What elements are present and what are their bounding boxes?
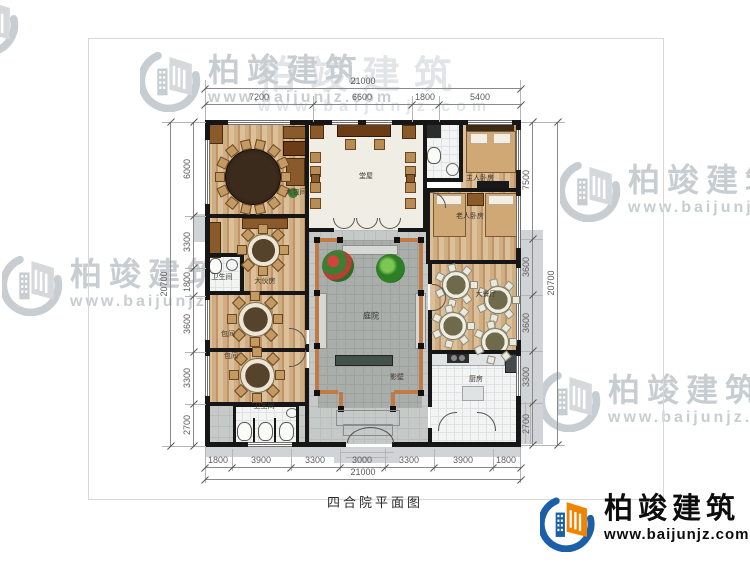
wall	[398, 228, 427, 232]
side-porch	[193, 214, 205, 242]
dim-bottom-total: 21000	[350, 467, 375, 477]
dim-right-total: 20700	[546, 270, 556, 295]
room-label-master-bedroom: 主人卧房	[466, 173, 494, 183]
wall	[426, 260, 521, 264]
burner	[459, 355, 465, 361]
courtyard-wall	[315, 240, 319, 390]
extension-line	[520, 80, 521, 120]
window	[468, 120, 512, 125]
extension-line	[185, 296, 206, 297]
stall-divider	[253, 418, 255, 442]
column	[314, 290, 320, 296]
window	[332, 120, 358, 125]
toilet	[237, 422, 252, 441]
dimension-line-left-total	[170, 122, 171, 446]
wall	[423, 178, 463, 182]
chair	[275, 370, 285, 380]
chair	[470, 281, 478, 289]
tree-symbol	[376, 254, 405, 283]
wall	[296, 404, 299, 442]
dim-left-seg: 1800	[182, 272, 192, 292]
tea-table	[406, 174, 415, 183]
room-label-bathroom-mid: 卫生间	[212, 272, 233, 282]
courtyard-wall	[419, 240, 423, 390]
room-label-elder-bedroom: 老人卧房	[456, 211, 484, 221]
wall	[392, 442, 521, 447]
plant-stand	[402, 125, 416, 139]
tree-symbol	[322, 250, 354, 282]
chair	[486, 320, 496, 330]
dim-bottom-seg: 3000	[352, 455, 372, 465]
dim-bottom-seg: 3900	[453, 455, 473, 465]
chair	[227, 314, 237, 324]
dimension-line-bottom-total	[205, 479, 521, 480]
dimension-line-right-segments	[532, 122, 533, 445]
chair	[281, 172, 291, 182]
dim-bottom-seg: 1800	[208, 455, 228, 465]
pillow	[488, 195, 514, 205]
window	[516, 196, 521, 248]
room-label-screen-wall: 影壁	[390, 372, 404, 382]
courtyard-wall	[318, 390, 338, 394]
room-label-private-1: 包间	[221, 329, 235, 339]
dim-top-total: 21000	[350, 76, 375, 86]
wall	[305, 228, 334, 232]
chair	[250, 291, 260, 301]
column	[314, 343, 320, 349]
extension-line	[185, 216, 206, 217]
chair	[374, 139, 385, 150]
dim-right-seg: 3300	[521, 367, 531, 387]
chair	[279, 245, 289, 255]
chair	[444, 339, 454, 349]
window	[248, 442, 292, 447]
wall	[305, 214, 309, 330]
chair	[258, 224, 268, 234]
chair	[467, 322, 475, 330]
dim-right-seg: 3600	[521, 257, 531, 277]
extension-line	[412, 96, 413, 122]
kitchen-island	[462, 386, 484, 401]
window	[205, 300, 210, 340]
chair	[252, 347, 262, 357]
extension-line	[439, 96, 440, 122]
room-label-big-private: 大包间	[286, 187, 307, 197]
chair	[486, 355, 496, 365]
courtyard-wall	[318, 238, 338, 242]
dimension-line-top-total	[205, 88, 521, 89]
extension-line	[185, 352, 206, 353]
chair	[509, 338, 517, 346]
room-label-hall: 堂屋	[359, 171, 373, 181]
washing-machine	[426, 123, 441, 138]
extension-line	[185, 268, 206, 269]
toilet	[279, 422, 294, 441]
chair	[444, 304, 454, 314]
wall	[240, 253, 244, 293]
dimension-line-right-total	[557, 122, 558, 445]
sink	[446, 163, 459, 176]
wall	[428, 264, 432, 284]
dim-right-seg: 7500	[521, 170, 531, 190]
chair	[512, 296, 520, 304]
chair	[345, 139, 356, 150]
window	[228, 120, 290, 125]
chair	[237, 245, 247, 255]
dim-left-seg: 6000	[182, 159, 192, 179]
dimension-line-left-segments	[193, 122, 194, 446]
toilet	[427, 147, 441, 164]
tea-table	[311, 174, 320, 183]
column	[418, 290, 424, 296]
wall	[305, 368, 309, 447]
dim-bottom-seg: 3300	[305, 455, 325, 465]
column	[418, 390, 424, 396]
stall-divider	[274, 418, 276, 442]
chair	[405, 152, 416, 163]
dim-left-seg: 2700	[182, 415, 192, 435]
baijun-logo-icon	[540, 494, 598, 552]
dim-left-seg: 3600	[182, 314, 192, 334]
wall	[428, 354, 432, 407]
chair	[310, 198, 321, 209]
dim-left-seg: 3300	[182, 368, 192, 388]
dim-bottom-seg: 3300	[399, 455, 419, 465]
chair	[447, 263, 457, 273]
floor-plan-page: 柏竣建筑 www.baijunjz.com 柏竣建筑 www.baijunjz.…	[0, 0, 750, 563]
extension-line	[313, 96, 314, 122]
dim-top-seg: 5400	[470, 92, 490, 102]
nightstand	[467, 193, 484, 206]
window	[366, 120, 392, 125]
drawing-title: 四合院平面图	[327, 492, 423, 511]
wall	[459, 120, 463, 182]
extension-line	[185, 404, 206, 405]
dim-top-seg: 1800	[415, 92, 435, 102]
cabinet	[208, 124, 223, 144]
window	[516, 130, 521, 170]
dimension-line-top-segments	[205, 104, 521, 105]
room-label-main-dining: 大餐厅	[476, 289, 497, 299]
burner	[451, 355, 457, 361]
pillow	[470, 133, 488, 144]
chair	[310, 182, 321, 193]
wall	[426, 188, 521, 192]
wine-cabinet	[283, 141, 306, 156]
sink	[226, 259, 238, 271]
wall	[428, 428, 432, 446]
wall	[233, 404, 236, 442]
chair	[250, 337, 260, 347]
porch-step-line	[340, 452, 394, 453]
column	[314, 390, 320, 396]
dim-top-seg: 6600	[352, 92, 372, 102]
chair	[273, 314, 283, 324]
room-label-courtyard: 庭院	[363, 311, 379, 322]
column	[418, 343, 424, 349]
dim-right-seg: 3600	[521, 313, 531, 333]
column	[337, 237, 343, 243]
toilet	[258, 422, 273, 441]
dim-bottom-seg: 1800	[496, 455, 516, 465]
window	[205, 140, 210, 204]
chair	[405, 198, 416, 209]
chair	[489, 278, 499, 288]
plant-stand	[310, 125, 324, 139]
column	[394, 237, 400, 243]
window	[205, 356, 210, 396]
chair	[229, 370, 239, 380]
chair	[215, 172, 225, 182]
cabinet	[283, 126, 306, 139]
room-label-kitchen: 厨房	[469, 374, 483, 384]
altar-table	[337, 124, 391, 137]
brand-logo: 柏竣建筑 www.baijunjz.com	[540, 494, 749, 552]
dim-bottom-seg: 3900	[251, 455, 271, 465]
dim-left-total: 20700	[159, 271, 169, 296]
brand-name: 柏竣建筑	[604, 494, 749, 524]
column	[418, 237, 424, 243]
room-label-bathroom-public: 卫生间	[254, 401, 275, 411]
chair	[258, 266, 268, 276]
chair	[405, 182, 416, 193]
dim-right-seg: 2700	[521, 414, 531, 434]
column	[314, 237, 320, 243]
room-label-private-2: 包间	[224, 351, 238, 361]
chair	[310, 152, 321, 163]
chair	[240, 139, 252, 151]
headboard	[466, 124, 514, 131]
brand-url: www.baijunjz.com	[604, 526, 749, 543]
pillow	[493, 133, 511, 144]
dim-left-seg: 3300	[182, 232, 192, 252]
room-label-family-dining: 大伙房	[255, 276, 276, 286]
screen-wall	[335, 355, 393, 366]
dim-top-seg: 7200	[249, 92, 269, 102]
